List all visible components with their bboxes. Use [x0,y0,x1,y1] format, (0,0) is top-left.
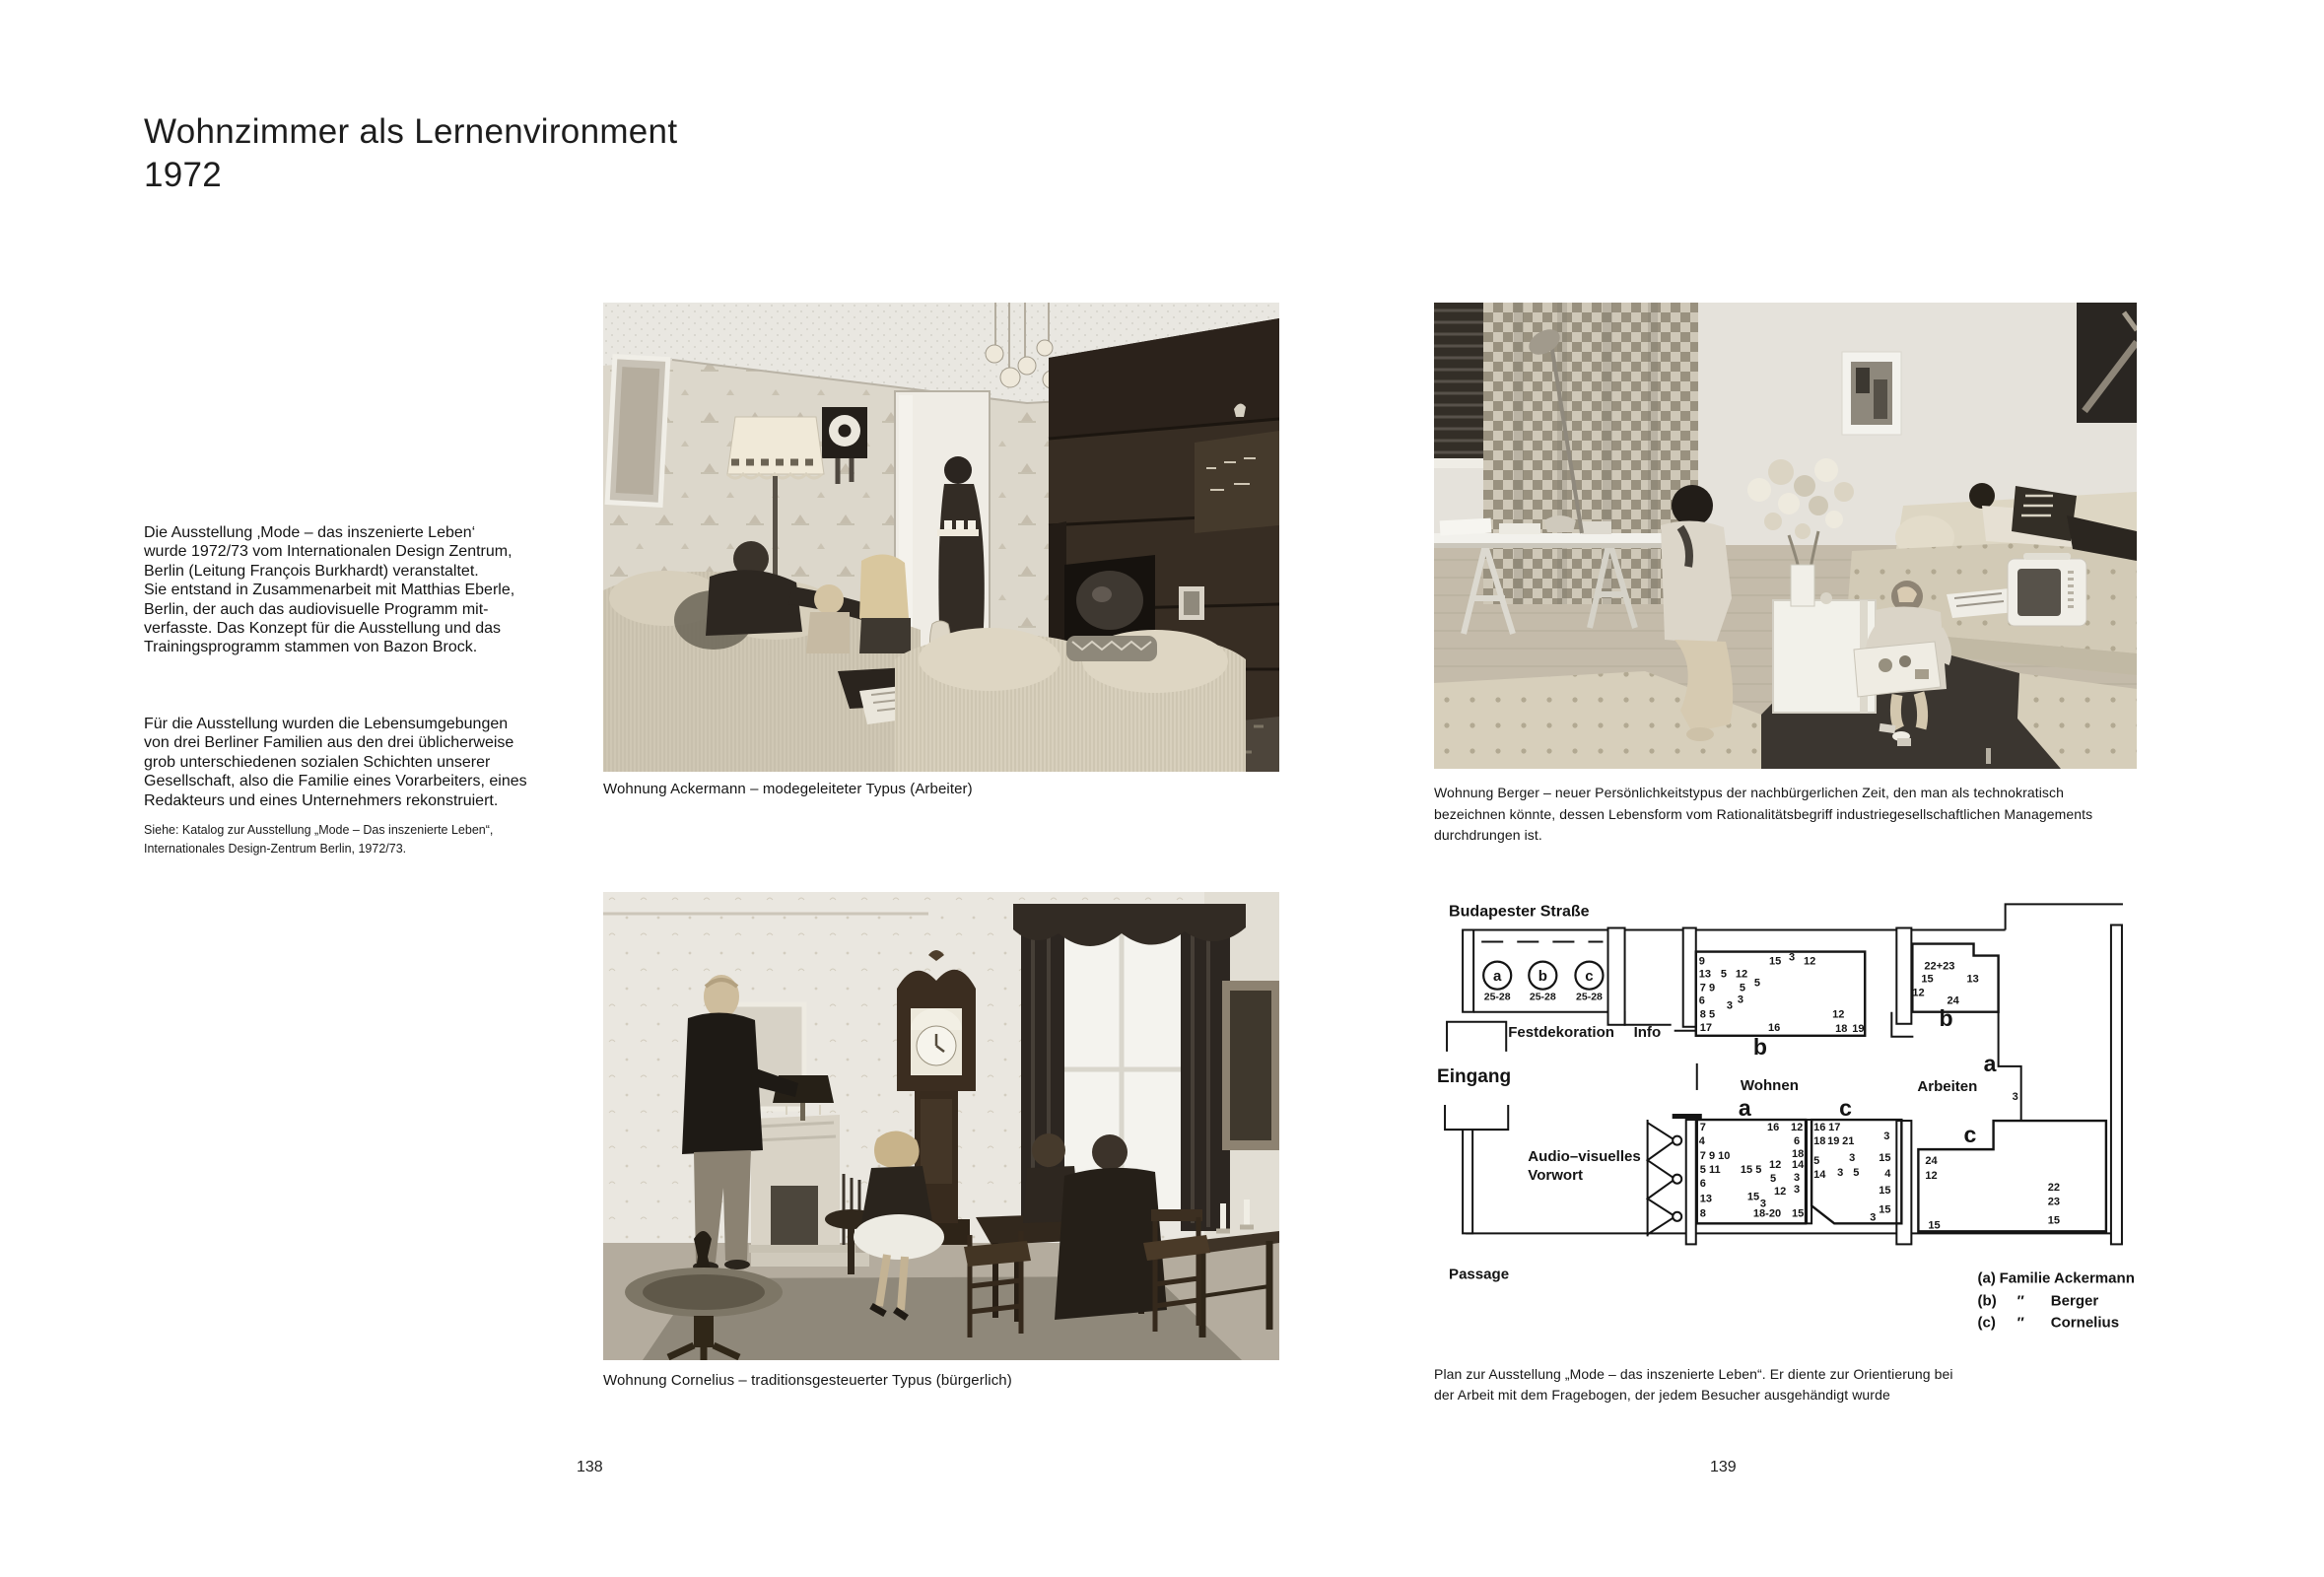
exhibit-number: 6 [1699,995,1705,1007]
exhibit-number: 7 [1700,1122,1706,1133]
exhibit-number: 19 [1852,1023,1864,1035]
exhibit-number: 5 [1813,1155,1819,1167]
text-line: verfasste. Das Konzept für die Ausstellu… [144,619,656,638]
caption-plan: Plan zur Ausstellung „Mode – das inszeni… [1434,1364,1953,1406]
vase [1791,565,1814,606]
exhibit-number: 15 [1747,1191,1759,1202]
exhibit-number: 15 [2048,1214,2060,1226]
exhibit-number: 5 [1754,978,1760,990]
text-line: Siehe: Katalog zur Ausstellung „Mode – D… [144,821,493,840]
room-letter: c [1964,1122,1977,1147]
exhibit-number: 7 9 [1700,983,1715,994]
text-line: Gesellschaft, also die Familie eines Vor… [144,772,656,790]
exhibit-number: 16 [1768,1022,1780,1034]
exhibit-number: 7 9 10 [1700,1150,1731,1162]
photo-wohnung-ackermann [603,303,1279,772]
corner-artwork [2077,303,2137,423]
exhibit-number: 12 [1912,988,1924,999]
exhibit-number: 3 [1883,1131,1889,1142]
exhibit-number: 3 [1794,1172,1800,1184]
area-label: Audio–visuelles [1528,1148,1640,1165]
area-label: Arbeiten [1917,1078,1977,1095]
caption-ackermann: Wohnung Ackermann – modegeleiteter Typus… [603,781,973,797]
station-range: 25-28 [1484,992,1511,1003]
page-number-left: 138 [577,1459,603,1476]
text-line: Wohnzimmer als Lernenvironment [144,110,677,154]
area-label: Eingang [1437,1066,1511,1087]
exhibit-number: 15 [1879,1203,1890,1215]
station-letter: a [1493,968,1502,985]
exhibit-number: 15 5 [1741,1164,1761,1176]
exhibit-number: 3 [1837,1167,1843,1179]
legend-name: Familie Ackermann [2000,1269,2135,1286]
candle [1220,1203,1226,1231]
text-line: Die Ausstellung ‚Mode – das inszenierte … [144,523,656,542]
exhibit-number: 15 [1792,1207,1804,1219]
station-letter: c [1585,968,1593,985]
exhibit-number: 3 [1738,994,1743,1006]
room-letter: c [1839,1095,1852,1121]
exhibit-number: 5 [1740,983,1745,994]
photo-wohnung-berger [1434,303,2137,769]
exhibit-number: 15 [1928,1219,1940,1231]
room-letter: b [1753,1034,1767,1060]
exhibit-number: 18-20 [1753,1207,1781,1219]
exhibit-number: 24 [1925,1155,1938,1167]
exhibit-number: 4 [1884,1168,1891,1180]
picture-frame [607,357,668,506]
text-line: bezeichnen könnte, dessen Lebensform vom… [1434,804,2092,826]
exhibit-number: 15 [1879,1152,1890,1164]
foreground-sofa [895,628,1246,772]
white-skirt [854,1214,944,1260]
exhibit-number: 5 11 [1700,1164,1721,1176]
exhibit-number: 8 [1700,1207,1706,1219]
exhibit-number: 17 [1828,1122,1840,1133]
area-label: Vorwort [1528,1167,1583,1184]
body-paragraph-1: Die Ausstellung ‚Mode – das inszenierte … [144,523,656,657]
small-print-frame [1842,352,1901,435]
photo-wohnung-cornelius [603,892,1279,1360]
exhibit-number: 13 [1700,1193,1712,1204]
text-line: Redakteurs und eines Unternehmers rekons… [144,791,656,810]
exhibit-number: 12 [1736,969,1747,981]
exhibit-number: 16 [1813,1122,1825,1133]
papers [1440,518,1492,536]
exhibit-number: 6 [1700,1178,1706,1190]
candle [1244,1200,1250,1227]
text-line: Internationales Design-Zentrum Berlin, 1… [144,840,493,858]
exhibit-number: 15 [1769,956,1781,968]
legend-ditto: ″ [2017,1315,2024,1332]
legend-key: (a) [1978,1269,1996,1286]
room-letter: a [1984,1051,1997,1076]
exhibit-number: 16 [1767,1122,1779,1133]
plan-legend: (a)Familie Ackermann(b)″Berger(c)″Cornel… [1978,1269,2135,1331]
telephone [1544,515,1576,532]
text-line: Berlin, der auch das audiovisuelle Progr… [144,600,656,619]
exhibit-number: 5 [1770,1173,1776,1185]
legend-name: Berger [2051,1293,2099,1310]
exhibit-number: 3 [1727,1000,1733,1012]
exhibit-number: 5 [1721,969,1727,981]
exhibit-number: 22 [2048,1182,2060,1194]
area-label: Info [1634,1024,1662,1041]
exhibit-number: 15 [1879,1185,1890,1197]
text-line: 1972 [144,154,677,197]
book-spread: Wohnzimmer als Lernenvironment1972 Die A… [0,0,2324,1577]
text-line: Für die Ausstellung wurden die Lebensumg… [144,715,656,733]
exhibit-number: 24 [1947,995,1959,1007]
page-title: Wohnzimmer als Lernenvironment1972 [144,110,677,197]
exhibit-number: 14 [1792,1159,1805,1171]
area-label: Festdekoration [1508,1024,1614,1041]
exhibit-number: 6 [1794,1135,1800,1147]
exhibit-number: 12 [1804,956,1815,968]
legend-name: Cornelius [2051,1315,2119,1332]
text-line: von drei Berliner Familien aus den drei … [144,733,656,752]
exhibit-number: 3 [1849,1152,1855,1164]
exhibit-number: 12 [1774,1186,1786,1198]
text-line: Trainingsprogramm stammen von Bazon Broc… [144,638,656,656]
portable-tv [2008,553,2086,626]
exhibit-number: 12 [1791,1122,1803,1133]
legend-key: (b) [1978,1293,1997,1310]
exhibit-number: 14 [1813,1169,1826,1181]
room-letter: a [1739,1095,1751,1121]
caption-berger: Wohnung Berger – neuer Persönlichkeitsty… [1434,783,2092,847]
page-number-right: 139 [1710,1459,1737,1476]
legend-key: (c) [1978,1315,1996,1332]
area-label: Wohnen [1741,1077,1799,1094]
exhibit-number: 3 [1870,1211,1876,1223]
exhibit-number: 5 [1853,1167,1859,1179]
exhibition-floor-plan: a25-28b25-28c25-28 Budapester StraßeFest… [1427,880,2139,1336]
exhibit-number: 9 [1699,956,1705,968]
exhibit-number: 15 [1921,974,1933,986]
exhibit-number: 8 5 [1700,1009,1715,1021]
text-line: Wohnung Berger – neuer Persönlichkeitsty… [1434,783,2092,804]
room-letter: b [1939,1005,1952,1031]
exhibit-number: 3 [1794,1184,1800,1196]
footnote: Siehe: Katalog zur Ausstellung „Mode – D… [144,821,493,858]
exhibit-number: 13 [1967,974,1979,986]
exhibit-number: 22+23 [1924,961,1954,973]
caption-cornelius: Wohnung Cornelius – traditionsgesteuerte… [603,1372,1012,1389]
exhibit-number: 13 [1699,969,1711,981]
text-line: grob unterschiedenen sozialen Schichten … [144,753,656,772]
exhibit-number: 12 [1925,1170,1937,1182]
exhibit-number: 17 [1700,1022,1712,1034]
exhibit-number: 4 [1699,1135,1706,1147]
oil-painting [1222,981,1279,1150]
plan-stations: a25-28b25-28c25-28 [1483,962,1603,1003]
text-line: durchdrungen ist. [1434,825,2092,847]
exhibit-number: 23 [2048,1196,2060,1207]
station-letter: b [1538,968,1547,985]
text-line: Sie entstand in Zusammenarbeit mit Matth… [144,581,656,599]
text-line: der Arbeit mit dem Fragebogen, der jedem… [1434,1385,1953,1406]
exhibit-number: 12 [1832,1009,1844,1021]
exhibit-number: 19 [1827,1135,1839,1147]
text-line: Plan zur Ausstellung „Mode – das inszeni… [1434,1364,1953,1385]
area-label: Passage [1449,1266,1509,1282]
exhibit-number: 3 [1789,952,1795,964]
exhibit-number: 18 [1813,1135,1825,1147]
text-line: wurde 1972/73 vom Internationalen Design… [144,542,656,561]
station-range: 25-28 [1576,992,1603,1003]
legend-ditto: ″ [2017,1293,2024,1310]
exhibit-number: 21 [1842,1135,1854,1147]
text-line: Berlin (Leitung François Burkhardt) vera… [144,562,656,581]
body-paragraph-2: Für die Ausstellung wurden die Lebensumg… [144,715,656,810]
exhibit-number: 18 [1835,1023,1847,1035]
street-label: Budapester Straße [1449,902,1590,920]
station-range: 25-28 [1530,992,1556,1003]
exhibit-number: 3 [2013,1091,2018,1103]
exhibit-number: 12 [1769,1159,1781,1171]
